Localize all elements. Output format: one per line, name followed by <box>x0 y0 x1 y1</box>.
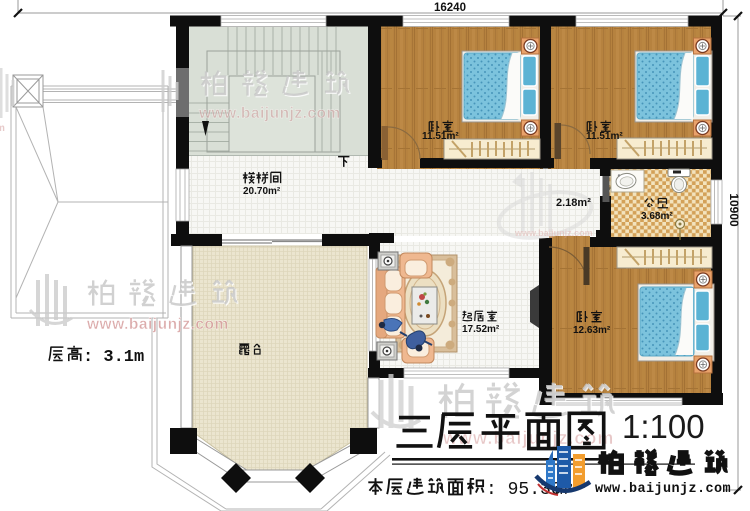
svg-text:16240: 16240 <box>434 2 466 14</box>
svg-text:3.68m²: 3.68m² <box>641 211 673 222</box>
svg-text:17.52m²: 17.52m² <box>462 324 500 335</box>
svg-text:10900: 10900 <box>727 193 741 227</box>
svg-text:www.baijunjz.com: www.baijunjz.com <box>86 316 229 333</box>
svg-text:2.18m²: 2.18m² <box>556 197 591 209</box>
svg-text:11.51m²: 11.51m² <box>422 131 459 142</box>
svg-text:: 3.1m: : 3.1m <box>83 348 144 367</box>
svg-text:m: m <box>0 123 5 134</box>
svg-text:11.51m²: 11.51m² <box>586 131 623 142</box>
svg-text:www.baijunjz.com: www.baijunjz.com <box>514 228 593 238</box>
svg-text:1:100: 1:100 <box>622 408 705 445</box>
svg-text:www.baijunjz.com: www.baijunjz.com <box>595 482 731 497</box>
svg-text:www.baijunjz.com: www.baijunjz.com <box>198 105 341 122</box>
svg-text:20.70m²: 20.70m² <box>243 186 281 197</box>
svg-text:12.63m²: 12.63m² <box>573 325 611 336</box>
